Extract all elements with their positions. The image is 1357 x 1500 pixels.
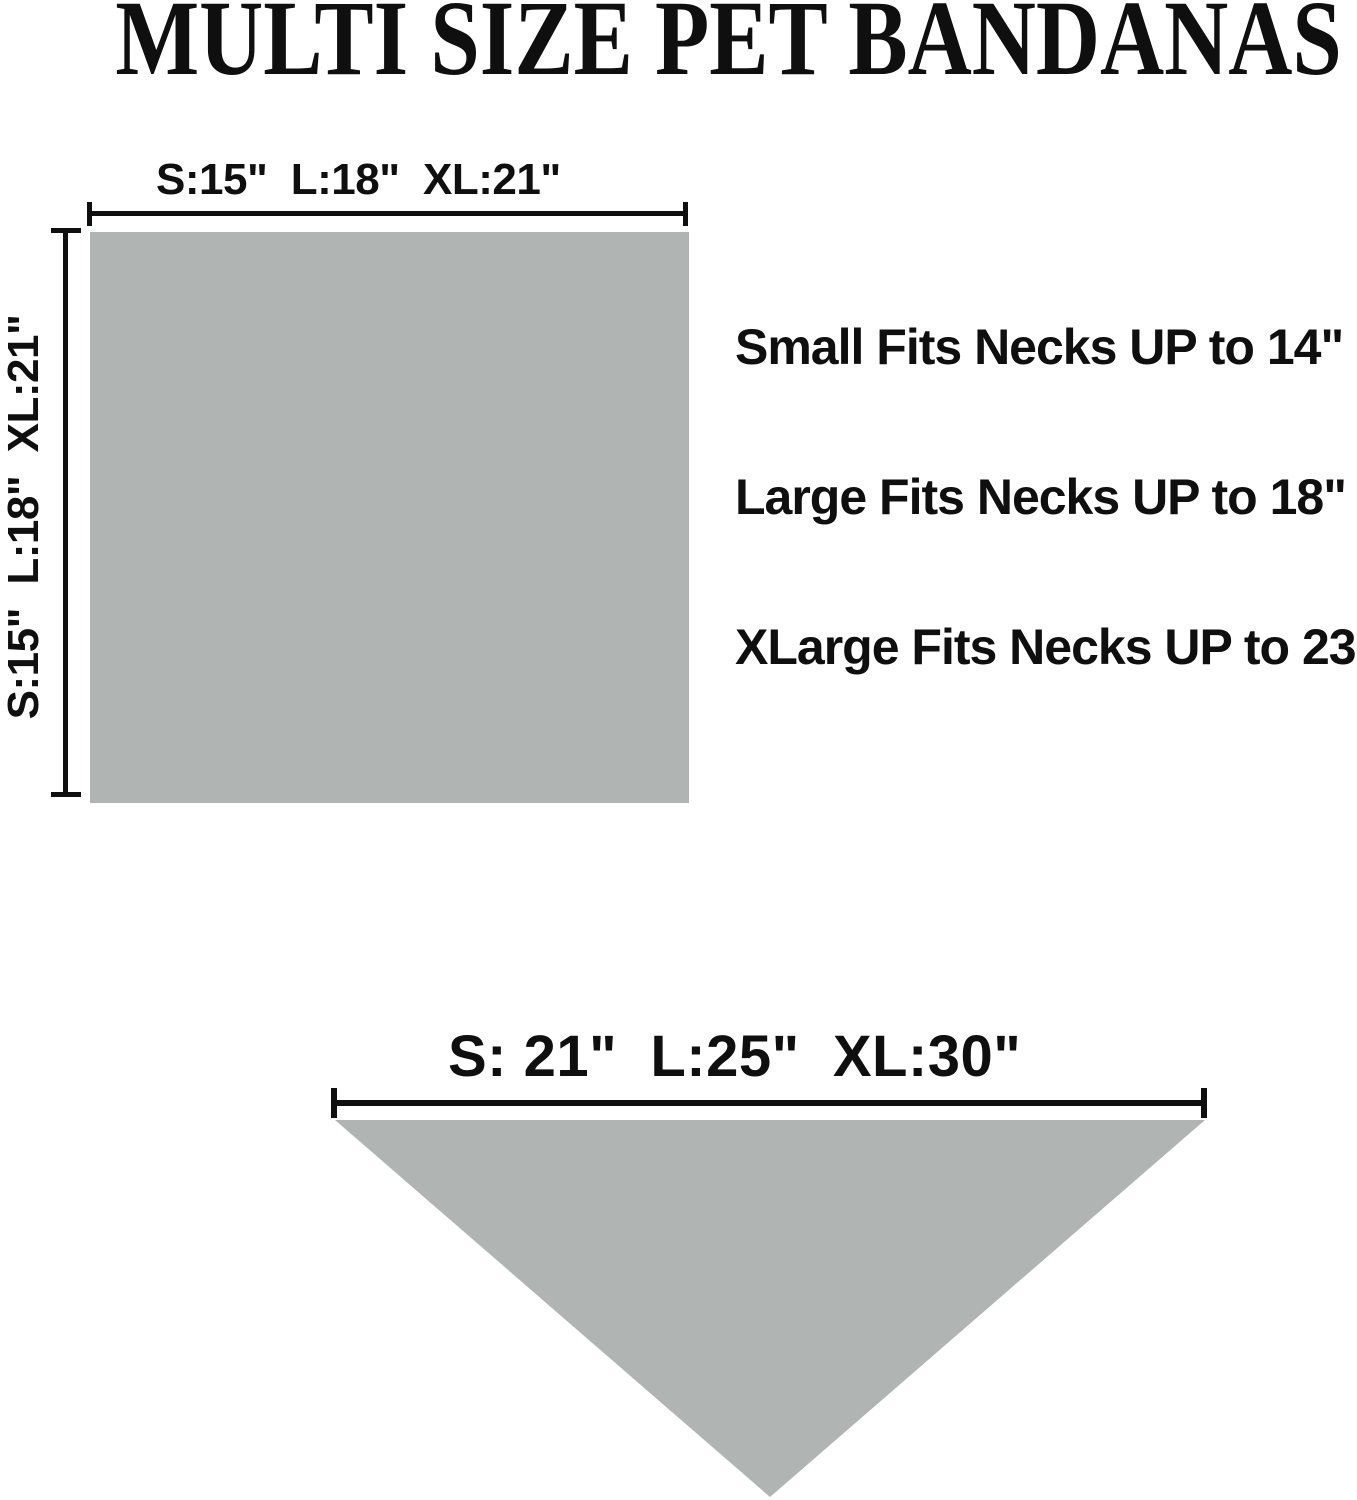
flat-width-dimension-line bbox=[87, 211, 688, 216]
folded-width-label: S: 21" L:25" XL:30" bbox=[448, 1028, 1021, 1086]
fit-note-small: Small Fits Necks UP to 14" bbox=[735, 322, 1343, 372]
flat-height-label: S:15" L:18" XL:21" bbox=[2, 315, 46, 720]
flat-width-label: S:15" L:18" XL:21" bbox=[156, 158, 561, 202]
fit-note-xlarge: XLarge Fits Necks UP to 23" bbox=[735, 622, 1357, 672]
fit-note-large: Large Fits Necks UP to 18" bbox=[735, 472, 1346, 522]
folded-width-dimension-line bbox=[331, 1100, 1207, 1106]
page-title: MULTI SIZE PET BANDANAS bbox=[115, 0, 1241, 93]
folded-bandana-swatch bbox=[335, 1120, 1205, 1497]
flat-height-dimension-line bbox=[63, 228, 68, 797]
flat-bandana-swatch bbox=[90, 232, 689, 803]
pet-bandana-size-chart: MULTI SIZE PET BANDANAS S:15" L:18" XL:2… bbox=[0, 0, 1357, 1500]
